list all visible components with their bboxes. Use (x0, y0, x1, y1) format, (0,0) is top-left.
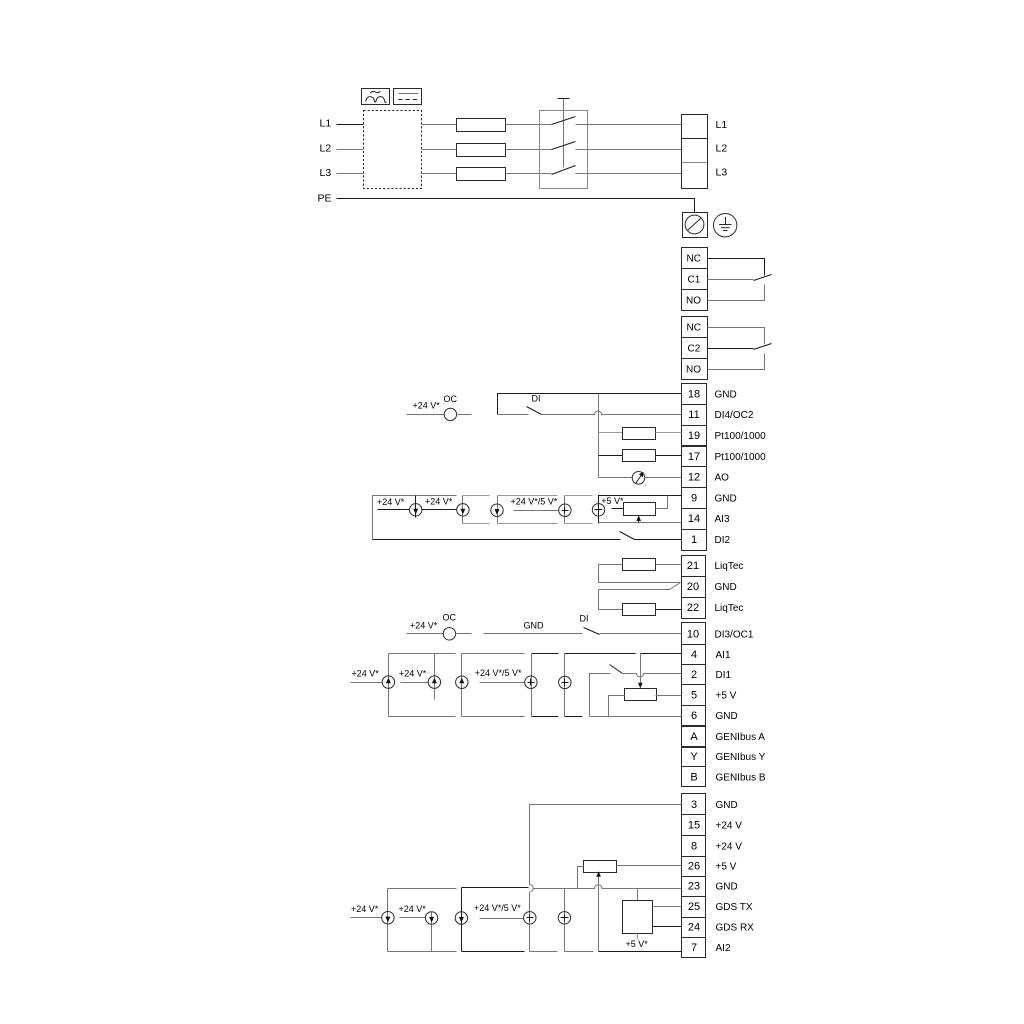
svg-text:AI3: AI3 (715, 514, 730, 525)
svg-text:DI4/OC2: DI4/OC2 (715, 410, 754, 421)
svg-text:19: 19 (688, 430, 700, 442)
svg-text:+24 V*: +24 V* (410, 621, 438, 631)
svg-text:DI: DI (532, 394, 541, 404)
svg-text:DI: DI (580, 614, 589, 624)
svg-text:Pt100/1000: Pt100/1000 (715, 452, 767, 463)
svg-text:+24 V*: +24 V* (413, 401, 441, 411)
svg-text:6: 6 (691, 710, 697, 722)
svg-text:NC: NC (687, 254, 701, 265)
svg-text:L3: L3 (716, 167, 728, 179)
svg-text:+5 V: +5 V (716, 862, 737, 873)
svg-text:+5 V*: +5 V* (601, 496, 624, 506)
svg-text:+24 V*: +24 V* (425, 496, 453, 506)
svg-text:L2: L2 (320, 143, 332, 155)
svg-text:18: 18 (688, 388, 700, 400)
svg-text:AI2: AI2 (716, 943, 731, 954)
svg-text:8: 8 (691, 841, 697, 853)
svg-text:26: 26 (688, 861, 700, 873)
svg-text:+24 V*: +24 V* (399, 904, 427, 914)
svg-text:OC: OC (444, 394, 458, 404)
svg-text:DI2: DI2 (715, 535, 731, 546)
svg-text:20: 20 (687, 581, 699, 593)
svg-text:GND: GND (716, 800, 738, 811)
svg-text:7: 7 (691, 942, 697, 954)
svg-text:GND: GND (715, 493, 737, 504)
svg-text:GND: GND (716, 882, 738, 893)
svg-text:NO: NO (686, 296, 701, 307)
svg-text:OC: OC (443, 613, 457, 623)
svg-text:LiqTec: LiqTec (715, 603, 744, 614)
svg-text:+24 V: +24 V (716, 842, 743, 853)
svg-text:AI1: AI1 (716, 650, 731, 661)
svg-text:+24 V*: +24 V* (399, 669, 427, 679)
svg-text:3: 3 (691, 799, 697, 811)
svg-text:2: 2 (691, 669, 697, 681)
svg-text:GND: GND (716, 711, 738, 722)
svg-text:C1: C1 (688, 275, 701, 286)
svg-text:GND: GND (524, 621, 545, 631)
svg-text:GDS RX: GDS RX (716, 923, 755, 934)
svg-text:PE: PE (318, 193, 332, 205)
svg-text:L1: L1 (320, 118, 332, 130)
svg-text:+5 V*: +5 V* (626, 939, 649, 949)
svg-text:+24 V*/5 V*: +24 V*/5 V* (511, 496, 558, 506)
svg-text:24: 24 (688, 922, 700, 934)
svg-text:11: 11 (688, 409, 699, 421)
svg-text:1: 1 (691, 534, 697, 546)
svg-text:10: 10 (687, 628, 699, 640)
svg-text:B: B (690, 772, 697, 784)
svg-text:LiqTec: LiqTec (715, 561, 744, 572)
svg-text:+24 V: +24 V (716, 821, 743, 832)
svg-text:L2: L2 (716, 143, 728, 155)
svg-text:DI1: DI1 (716, 670, 732, 681)
svg-text:14: 14 (688, 513, 700, 525)
svg-text:15: 15 (688, 820, 700, 832)
svg-text:21: 21 (687, 560, 699, 572)
svg-text:17: 17 (688, 451, 700, 463)
svg-text:12: 12 (688, 472, 700, 484)
svg-text:+24 V*: +24 V* (377, 497, 405, 507)
svg-text:4: 4 (691, 649, 697, 661)
svg-text:5: 5 (691, 690, 697, 702)
svg-text:+24 V*: +24 V* (352, 669, 380, 679)
svg-text:L3: L3 (320, 167, 332, 179)
svg-text:23: 23 (688, 881, 700, 893)
svg-text:C2: C2 (688, 344, 701, 355)
svg-text:GENIbus Y: GENIbus Y (716, 752, 766, 763)
svg-text:9: 9 (691, 492, 697, 504)
svg-text:DI3/OC1: DI3/OC1 (715, 629, 754, 640)
svg-text:+5 V: +5 V (716, 691, 737, 702)
svg-text:GND: GND (715, 389, 737, 400)
svg-text:NO: NO (686, 365, 701, 376)
svg-text:25: 25 (688, 901, 700, 913)
svg-text:+24 V*: +24 V* (351, 904, 379, 914)
svg-text:+24 V*/5 V*: +24 V*/5 V* (474, 903, 521, 913)
svg-text:NC: NC (687, 323, 701, 334)
svg-text:AO: AO (715, 473, 730, 484)
svg-text:GDS TX: GDS TX (716, 902, 753, 913)
svg-text:GENIbus A: GENIbus A (716, 732, 766, 743)
svg-text:+24 V*/5 V*: +24 V*/5 V* (475, 668, 522, 678)
svg-text:A: A (690, 731, 698, 743)
svg-text:Y: Y (690, 751, 698, 763)
svg-text:GND: GND (715, 582, 737, 593)
svg-text:Pt100/1000: Pt100/1000 (715, 431, 767, 442)
svg-text:L1: L1 (716, 119, 728, 131)
svg-text:GENIbus B: GENIbus B (716, 773, 766, 784)
svg-text:22: 22 (687, 602, 699, 614)
